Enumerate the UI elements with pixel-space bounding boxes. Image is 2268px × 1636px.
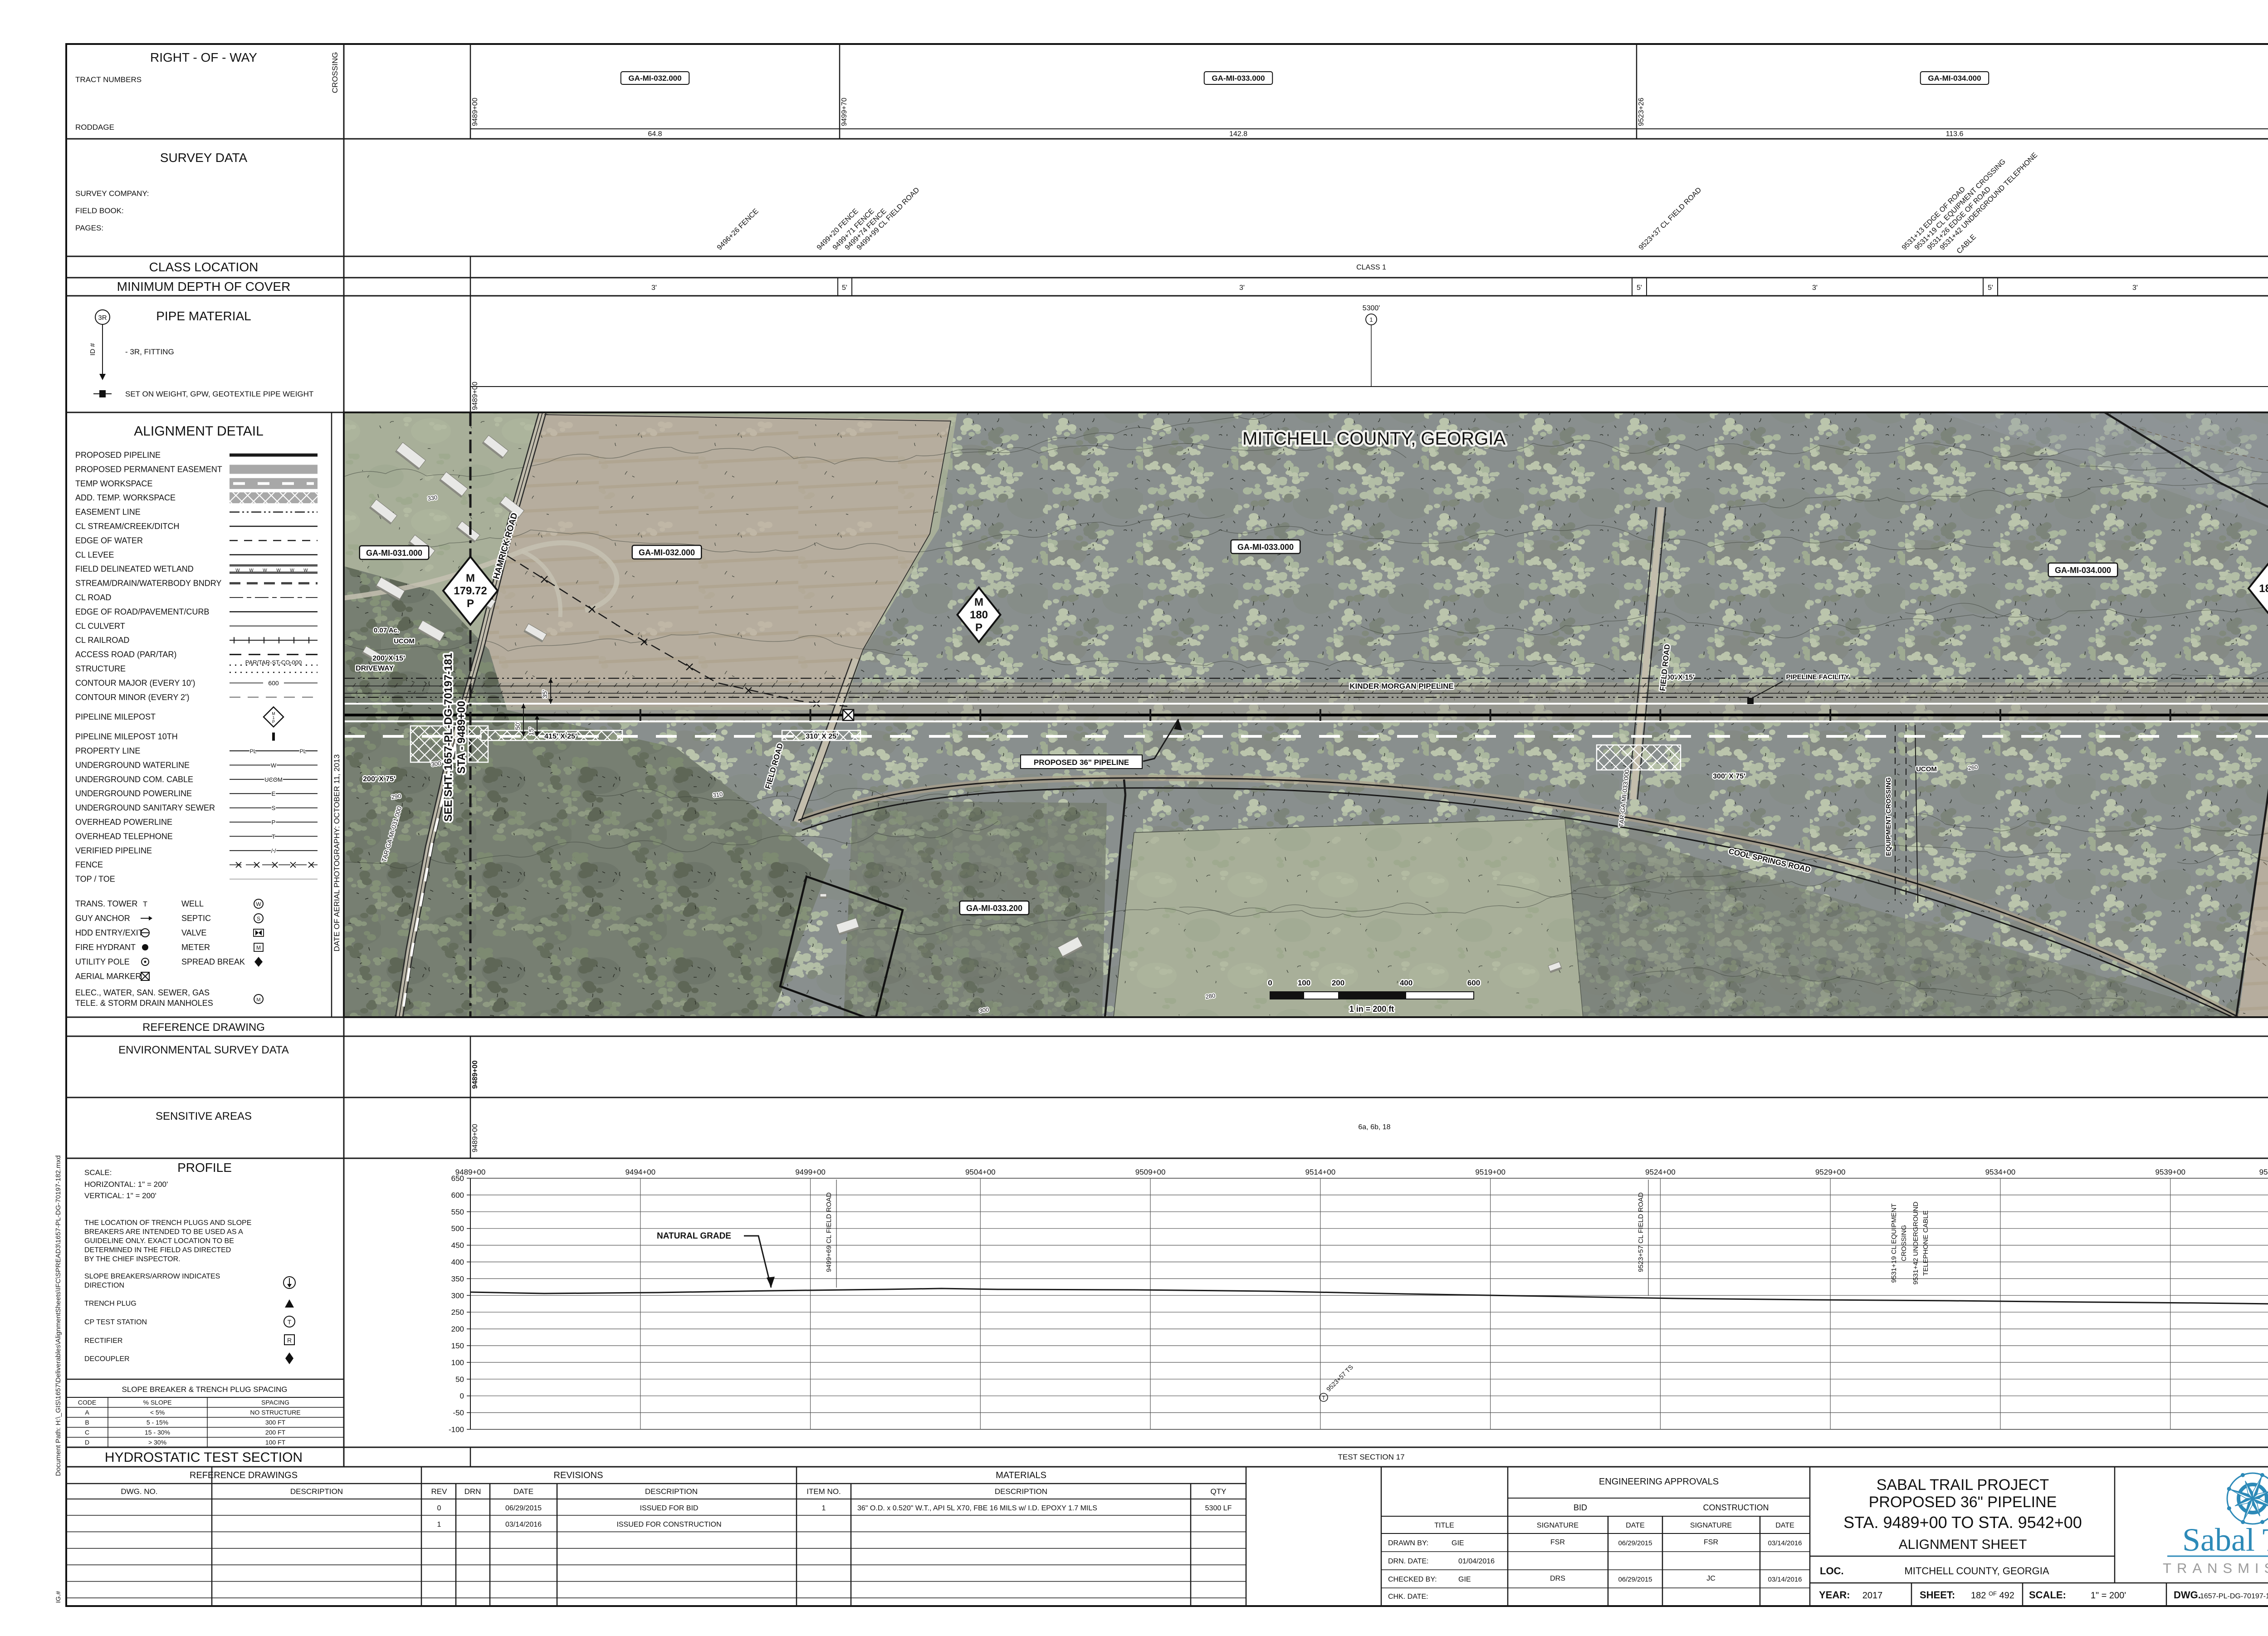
svg-text:DWG. NO.: DWG. NO.	[121, 1487, 157, 1496]
svg-text:CP TEST STATION: CP TEST STATION	[84, 1318, 147, 1326]
svg-text:FSR: FSR	[1704, 1538, 1718, 1546]
svg-text:UNDERGROUND POWERLINE: UNDERGROUND POWERLINE	[75, 789, 192, 798]
svg-text:-100: -100	[449, 1425, 464, 1434]
svg-text:ACCESS ROAD (PAR/TAR): ACCESS ROAD (PAR/TAR)	[75, 650, 176, 659]
svg-text:P: P	[272, 819, 276, 826]
svg-text:9524+00: 9524+00	[1645, 1168, 1676, 1176]
svg-text:03/14/2016: 03/14/2016	[1768, 1539, 1802, 1547]
svg-text:YEAR:: YEAR:	[1819, 1589, 1850, 1601]
svg-text:UNDERGROUND COM. CABLE: UNDERGROUND COM. CABLE	[75, 775, 193, 784]
svg-text:GUIDELINE ONLY. EXACT LOCATIO: GUIDELINE ONLY. EXACT LOCATION TO BE	[84, 1237, 234, 1245]
svg-text:REFERENCE DRAWINGS: REFERENCE DRAWINGS	[190, 1470, 298, 1480]
svg-text:SEE SHT. 1657-PL-DG-70197-181: SEE SHT. 1657-PL-DG-70197-181	[442, 653, 455, 822]
svg-text:W: W	[235, 568, 240, 573]
svg-text:200 FT: 200 FT	[265, 1429, 286, 1436]
svg-text:RIGHT - OF - WAY: RIGHT - OF - WAY	[150, 50, 257, 64]
svg-text:REVISIONS: REVISIONS	[554, 1470, 603, 1480]
svg-text:1: 1	[822, 1504, 826, 1512]
svg-text:W: W	[303, 568, 308, 573]
svg-text:0: 0	[1268, 979, 1272, 987]
svg-text:DRIVEWAY: DRIVEWAY	[356, 665, 394, 672]
svg-text:UCOM: UCOM	[1916, 765, 1937, 773]
svg-text:GA-MI-034.000: GA-MI-034.000	[1928, 74, 1981, 83]
svg-text:36" O.D. x 0.520" W.T., API 5L: 36" O.D. x 0.520" W.T., API 5L X70, FBE …	[857, 1504, 1097, 1512]
svg-text:142.8: 142.8	[1229, 130, 1247, 138]
svg-text:5': 5'	[1988, 284, 1993, 292]
svg-text:P: P	[272, 720, 275, 724]
svg-text:SPREAD BREAK: SPREAD BREAK	[181, 957, 245, 966]
svg-text:GA-MI-033.000: GA-MI-033.000	[1237, 543, 1294, 552]
svg-text:DATE: DATE	[1775, 1522, 1794, 1529]
svg-text:600: 600	[1467, 979, 1480, 987]
svg-text:3': 3'	[1239, 284, 1245, 292]
svg-text:CLASS 1: CLASS 1	[1356, 264, 1386, 271]
svg-text:350: 350	[451, 1274, 464, 1283]
svg-text:2017: 2017	[1862, 1591, 1883, 1601]
svg-text:9531+19 CL EQUIPMENT: 9531+19 CL EQUIPMENT	[1890, 1204, 1898, 1283]
svg-text:9523+26: 9523+26	[1637, 98, 1645, 126]
svg-text:9494+00: 9494+00	[625, 1168, 655, 1176]
svg-text:290: 290	[391, 793, 402, 801]
svg-text:CL CULVERT: CL CULVERT	[75, 622, 125, 631]
svg-text:GA-MI-033.000: GA-MI-033.000	[1212, 74, 1265, 83]
svg-text:CONTOUR MAJOR (EVERY 10'): CONTOUR MAJOR (EVERY 10')	[75, 678, 196, 687]
svg-text:200: 200	[1332, 979, 1344, 987]
svg-text:A: A	[85, 1409, 89, 1416]
svg-text:RODDAGE: RODDAGE	[75, 123, 114, 132]
svg-text:CL LEVEE: CL LEVEE	[75, 550, 114, 559]
svg-text:300: 300	[979, 1006, 990, 1014]
svg-text:NATURAL GRADE: NATURAL GRADE	[657, 1231, 731, 1241]
svg-text:P: P	[467, 598, 474, 610]
svg-text:1657-PL-DG-70197-182: 1657-PL-DG-70197-182	[2200, 1592, 2268, 1600]
svg-text:DESCRIPTION: DESCRIPTION	[290, 1487, 343, 1496]
svg-text:9489+00: 9489+00	[455, 1168, 486, 1176]
svg-text:FIRE HYDRANT: FIRE HYDRANT	[75, 943, 136, 952]
svg-text:EDGE OF WATER: EDGE OF WATER	[75, 536, 143, 545]
svg-text:W: W	[249, 568, 254, 573]
svg-text:T: T	[288, 1318, 292, 1326]
svg-text:600: 600	[451, 1191, 464, 1200]
svg-text:0.07 Ac.: 0.07 Ac.	[374, 627, 399, 634]
svg-text:W: W	[271, 762, 277, 769]
svg-text:ALIGNMENT SHEET: ALIGNMENT SHEET	[1899, 1537, 2027, 1552]
svg-text:SLOPE BREAKER & TRENCH PLUG SP: SLOPE BREAKER & TRENCH PLUG SPACING	[122, 1385, 288, 1394]
svg-text:SET ON WEIGHT, GPW, GEOTEXTILE: SET ON WEIGHT, GPW, GEOTEXTILE PIPE WEIG…	[125, 390, 313, 398]
svg-text:KINDER MORGAN PIPELINE: KINDER MORGAN PIPELINE	[1349, 682, 1454, 691]
svg-text:W: W	[276, 568, 281, 573]
svg-text:QTY: QTY	[1211, 1487, 1227, 1496]
svg-text:EDGE OF ROAD/PAVEMENT/CURB: EDGE OF ROAD/PAVEMENT/CURB	[75, 607, 209, 616]
svg-text:01/04/2016: 01/04/2016	[1458, 1558, 1495, 1565]
svg-text:CLASS LOCATION: CLASS LOCATION	[149, 260, 259, 274]
svg-text:S: S	[257, 916, 260, 922]
svg-text:DATE: DATE	[513, 1487, 533, 1496]
svg-text:DATE OF AERIAL PHOTOGRAPHY: OC: DATE OF AERIAL PHOTOGRAPHY: OCTOBER 11, …	[332, 754, 341, 952]
svg-text:9504+00: 9504+00	[965, 1168, 996, 1176]
svg-text:P: P	[975, 622, 982, 634]
svg-text:SABAL TRAIL PROJECT: SABAL TRAIL PROJECT	[1877, 1476, 2049, 1494]
svg-text:180: 180	[970, 609, 988, 621]
svg-text:DRAWN BY:: DRAWN BY:	[1388, 1539, 1428, 1547]
svg-text:PIPE MATERIAL: PIPE MATERIAL	[156, 309, 251, 323]
svg-text:100: 100	[451, 1358, 464, 1367]
svg-text:310: 310	[713, 791, 723, 799]
svg-text:MINIMUM DEPTH OF COVER: MINIMUM DEPTH OF COVER	[117, 279, 291, 294]
svg-text:GIE: GIE	[1458, 1576, 1471, 1583]
svg-text:UNDERGROUND WATERLINE: UNDERGROUND WATERLINE	[75, 760, 190, 769]
svg-text:6a, 6b, 18: 6a, 6b, 18	[1358, 1123, 1390, 1131]
svg-text:03/14/2016: 03/14/2016	[1768, 1576, 1802, 1583]
svg-text:TRACT NUMBERS: TRACT NUMBERS	[75, 75, 142, 84]
svg-text:113.6: 113.6	[1946, 130, 1964, 138]
svg-text:9509+00: 9509+00	[1135, 1168, 1166, 1176]
svg-text:TELEPHONE CABLE: TELEPHONE CABLE	[1922, 1210, 1930, 1276]
svg-text:T: T	[1322, 1396, 1325, 1401]
svg-text:9539+00: 9539+00	[2155, 1168, 2185, 1176]
svg-text:NO STRUCTURE: NO STRUCTURE	[250, 1409, 300, 1416]
svg-text:MATERIALS: MATERIALS	[996, 1470, 1046, 1480]
svg-text:PIPELINE MILEPOST 10TH: PIPELINE MILEPOST 10TH	[75, 732, 178, 741]
svg-text:CL STREAM/CREEK/DITCH: CL STREAM/CREEK/DITCH	[75, 522, 179, 531]
svg-text:5': 5'	[1637, 284, 1642, 292]
svg-text:06/29/2015: 06/29/2015	[505, 1504, 542, 1512]
svg-text:FIELD BOOK:: FIELD BOOK:	[75, 206, 124, 215]
svg-text:GIE: GIE	[1452, 1539, 1464, 1547]
svg-text:Sabal Trail: Sabal Trail	[2182, 1522, 2268, 1558]
svg-text:SIGNATURE: SIGNATURE	[1537, 1522, 1579, 1529]
svg-text:IG.#: IG.#	[54, 1591, 62, 1603]
svg-text:CROSSING: CROSSING	[1900, 1225, 1908, 1261]
svg-text:STRUCTURE: STRUCTURE	[75, 664, 126, 673]
svg-text:CONSTRUCTION: CONSTRUCTION	[1703, 1503, 1769, 1512]
svg-text:C: C	[85, 1429, 89, 1436]
svg-text:400: 400	[1400, 979, 1413, 987]
svg-text:FENCE: FENCE	[75, 860, 103, 869]
svg-text:50': 50'	[514, 722, 521, 730]
svg-text:CL RAILROAD: CL RAILROAD	[75, 636, 129, 645]
svg-text:DRN. DATE:: DRN. DATE:	[1388, 1558, 1428, 1565]
svg-text:9514+00: 9514+00	[1305, 1168, 1336, 1176]
svg-text:PROPOSED PERMANENT EASEMENT: PROPOSED PERMANENT EASEMENT	[75, 465, 222, 474]
svg-text:DESCRIPTION: DESCRIPTION	[645, 1487, 698, 1496]
svg-text:DWG.: DWG.	[2174, 1589, 2201, 1601]
svg-text:PL: PL	[300, 748, 307, 754]
svg-text:300 FT: 300 FT	[265, 1419, 286, 1426]
svg-text:260: 260	[1968, 764, 1979, 772]
svg-text:50: 50	[455, 1375, 464, 1384]
svg-text:64.8: 64.8	[648, 130, 662, 138]
svg-text:M: M	[256, 945, 261, 951]
svg-text:STREAM/DRAIN/WATERBODY BNDRY: STREAM/DRAIN/WATERBODY BNDRY	[75, 579, 221, 588]
svg-text:OVERHEAD POWERLINE: OVERHEAD POWERLINE	[75, 818, 172, 827]
svg-text:PL: PL	[250, 748, 257, 754]
svg-text:W: W	[263, 568, 267, 573]
svg-text:SCALE:: SCALE:	[84, 1168, 112, 1177]
svg-text:179.72: 179.72	[454, 585, 487, 597]
svg-text:AERIAL MARKER: AERIAL MARKER	[75, 972, 141, 981]
svg-text:UNDERGROUND SANITARY SEWER: UNDERGROUND SANITARY SEWER	[75, 803, 215, 813]
svg-text:3': 3'	[1812, 284, 1818, 292]
svg-text:M: M	[256, 997, 260, 1003]
svg-text:MITCHELL COUNTY, GEORGIA: MITCHELL COUNTY, GEORGIA	[1904, 1565, 2049, 1577]
svg-text:ID #: ID #	[89, 343, 97, 356]
svg-text:PROFILE: PROFILE	[177, 1161, 232, 1175]
svg-text:STA - 9489+00: STA - 9489+00	[455, 701, 468, 774]
svg-text:UCOM: UCOM	[394, 637, 415, 645]
svg-text:ISSUED FOR CONSTRUCTION: ISSUED FOR CONSTRUCTION	[616, 1521, 721, 1528]
svg-text:ALIGNMENT DETAIL: ALIGNMENT DETAIL	[134, 424, 264, 439]
svg-text:SHEET:: SHEET:	[1920, 1589, 1955, 1601]
svg-text:Document Path: H:\_GIS\1657\De: Document Path: H:\_GIS\1657\Deliverables…	[54, 1155, 62, 1476]
svg-text:< 5%: < 5%	[150, 1409, 165, 1416]
svg-text:TRANS. TOWER: TRANS. TOWER	[75, 899, 137, 908]
svg-text:CHK. DATE:: CHK. DATE:	[1388, 1593, 1428, 1601]
svg-text:330: 330	[427, 494, 438, 502]
svg-text:5300': 5300'	[1363, 304, 1380, 312]
svg-text:UCOM: UCOM	[264, 776, 283, 783]
svg-text:9489+00: 9489+00	[471, 1124, 479, 1152]
svg-text:DETERMINED IN THE FIELD AS DIR: DETERMINED IN THE FIELD AS DIRECTED	[84, 1246, 231, 1254]
svg-text:200: 200	[451, 1325, 464, 1333]
svg-text:JC: JC	[1706, 1575, 1716, 1582]
svg-text:GA-MI-032.000: GA-MI-032.000	[628, 74, 681, 83]
svg-text:06/29/2015: 06/29/2015	[1618, 1539, 1652, 1547]
svg-text:MITCHELL COUNTY, GEORGIA: MITCHELL COUNTY, GEORGIA	[1242, 429, 1505, 449]
svg-text:LOC.: LOC.	[1820, 1565, 1844, 1577]
svg-text:1" = 200': 1" = 200'	[2091, 1591, 2126, 1601]
svg-text:/ /: / /	[271, 847, 276, 854]
svg-text:BID: BID	[1574, 1503, 1587, 1512]
svg-text:EASEMENT LINE: EASEMENT LINE	[75, 508, 141, 517]
svg-text:200' X 75': 200' X 75'	[363, 775, 396, 783]
svg-text:VERTICAL: 1" = 200': VERTICAL: 1" = 200'	[84, 1191, 156, 1200]
svg-text:GUY ANCHOR: GUY ANCHOR	[75, 914, 130, 923]
svg-text:PAGES:: PAGES:	[75, 224, 103, 232]
svg-text:9489+00: 9489+00	[471, 98, 479, 126]
svg-text:ISSUED FOR BID: ISSUED FOR BID	[640, 1504, 699, 1512]
svg-text:SEPTIC: SEPTIC	[181, 914, 211, 923]
svg-text:9489+00: 9489+00	[471, 1060, 479, 1089]
svg-text:06/29/2015: 06/29/2015	[1618, 1576, 1652, 1583]
svg-text:GA-MI-031.000: GA-MI-031.000	[366, 549, 422, 558]
svg-text:300' X 75': 300' X 75'	[1713, 773, 1745, 780]
svg-text:5 - 15%: 5 - 15%	[147, 1419, 168, 1426]
svg-text:250: 250	[451, 1308, 464, 1317]
svg-text:5300 LF: 5300 LF	[1205, 1504, 1232, 1512]
svg-text:ITEM NO.: ITEM NO.	[807, 1487, 841, 1496]
svg-text:CODE: CODE	[78, 1399, 96, 1406]
svg-text:3': 3'	[2132, 284, 2138, 292]
svg-text:SLOPE BREAKERS/ARROW INDICATES: SLOPE BREAKERS/ARROW INDICATES	[84, 1273, 220, 1280]
svg-text:THE LOCATION OF TRENCH PLUGS A: THE LOCATION OF TRENCH PLUGS AND SLOPE	[84, 1219, 251, 1227]
svg-text:S: S	[272, 805, 276, 812]
svg-text:EQUIPMENT CROSSING: EQUIPMENT CROSSING	[1885, 777, 1892, 856]
svg-text:ELEC., WATER, SAN. SEWER, GAS: ELEC., WATER, SAN. SEWER, GAS	[75, 988, 210, 997]
svg-text:M: M	[974, 596, 983, 608]
svg-text:REFERENCE DRAWING: REFERENCE DRAWING	[142, 1021, 265, 1034]
svg-text:DATE: DATE	[1626, 1522, 1644, 1529]
svg-text:9519+00: 9519+00	[1475, 1168, 1505, 1176]
svg-text:9499+69 CL FIELD ROAD: 9499+69 CL FIELD ROAD	[825, 1192, 833, 1272]
svg-text:E: E	[272, 790, 276, 797]
svg-text:SURVEY DATA: SURVEY DATA	[160, 151, 248, 165]
svg-text:TITLE: TITLE	[1434, 1522, 1454, 1529]
svg-text:BY THE CHIEF INSPECTOR.: BY THE CHIEF INSPECTOR.	[84, 1255, 181, 1263]
svg-text:450: 450	[451, 1241, 464, 1250]
svg-text:5': 5'	[842, 284, 847, 292]
svg-text:SENSITIVE AREAS: SENSITIVE AREAS	[156, 1110, 252, 1122]
svg-text:180.72: 180.72	[2259, 583, 2268, 595]
svg-text:1: 1	[1369, 316, 1373, 323]
svg-text:RECTIFIER: RECTIFIER	[84, 1337, 122, 1345]
svg-text:0: 0	[437, 1504, 441, 1512]
svg-text:9529+00: 9529+00	[1815, 1168, 1846, 1176]
svg-text:-50: -50	[453, 1409, 464, 1417]
svg-text:TRENCH PLUG: TRENCH PLUG	[84, 1300, 137, 1308]
svg-text:> 30%: > 30%	[148, 1439, 166, 1446]
svg-text:UTILITY POLE: UTILITY POLE	[75, 957, 130, 966]
svg-text:ADD. TEMP. WORKSPACE: ADD. TEMP. WORKSPACE	[75, 493, 176, 502]
svg-text:BREAKERS ARE INTENDED TO BE US: BREAKERS ARE INTENDED TO BE USED AS A	[84, 1228, 243, 1236]
svg-text:SURVEY COMPANY:: SURVEY COMPANY:	[75, 189, 149, 198]
svg-text:SIGNATURE: SIGNATURE	[1690, 1522, 1732, 1529]
svg-text:0: 0	[460, 1392, 464, 1401]
svg-text:300: 300	[431, 760, 442, 768]
svg-text:PROPOSED PIPELINE: PROPOSED PIPELINE	[75, 451, 161, 460]
svg-text:TRANSMISSION: TRANSMISSION	[2163, 1560, 2268, 1576]
svg-text:150: 150	[451, 1342, 464, 1350]
svg-text:HDD ENTRY/EXIT: HDD ENTRY/EXIT	[75, 928, 143, 937]
svg-text:METER: METER	[181, 943, 210, 952]
svg-text:DRS: DRS	[1550, 1575, 1565, 1582]
svg-text:- 3R, FITTING: - 3R, FITTING	[125, 348, 174, 356]
svg-text:CL ROAD: CL ROAD	[75, 593, 111, 602]
svg-text:9523+57 CL FIELD ROAD: 9523+57 CL FIELD ROAD	[1637, 1192, 1645, 1272]
svg-text:280: 280	[1205, 992, 1216, 1000]
svg-text:15': 15'	[528, 727, 535, 735]
svg-text:TEST SECTION 17: TEST SECTION 17	[1338, 1453, 1404, 1461]
svg-text:HORIZONTAL: 1" = 200': HORIZONTAL: 1" = 200'	[84, 1180, 168, 1189]
svg-text:DIRECTION: DIRECTION	[84, 1282, 124, 1289]
svg-text:ENVIRONMENTAL SURVEY DATA: ENVIRONMENTAL SURVEY DATA	[118, 1044, 289, 1056]
svg-text:3': 3'	[651, 284, 657, 292]
svg-text:TOP / TOE: TOP / TOE	[75, 875, 115, 884]
svg-text:% SLOPE: % SLOPE	[143, 1399, 171, 1406]
svg-text:FIELD DELINEATED WETLAND: FIELD DELINEATED WETLAND	[75, 564, 194, 573]
svg-text:TEMP WORKSPACE: TEMP WORKSPACE	[75, 479, 152, 488]
svg-text:FSR: FSR	[1550, 1538, 1565, 1546]
svg-text:VALVE: VALVE	[181, 928, 206, 937]
svg-text:9499+70: 9499+70	[841, 98, 848, 126]
svg-text:35': 35'	[541, 690, 548, 698]
svg-text:310' X 25': 310' X 25'	[806, 733, 838, 740]
svg-text:M: M	[466, 572, 475, 584]
svg-text:REV: REV	[431, 1487, 448, 1496]
svg-text:TELE. & STORM DRAIN MANHOLES: TELE. & STORM DRAIN MANHOLES	[75, 999, 213, 1008]
svg-text:415' X 25': 415' X 25'	[544, 733, 577, 740]
svg-text:DRN: DRN	[464, 1487, 481, 1496]
svg-text:W: W	[290, 568, 294, 573]
svg-text:PROPOSED 36" PIPELINE: PROPOSED 36" PIPELINE	[1034, 758, 1129, 767]
svg-text:9531+42 UNDERGROUND: 9531+42 UNDERGROUND	[1912, 1201, 1920, 1284]
svg-text:T: T	[272, 833, 275, 840]
svg-text:9542+00: 9542+00	[2259, 1168, 2268, 1176]
svg-text:100: 100	[1298, 979, 1310, 987]
svg-text:100 FT: 100 FT	[265, 1439, 286, 1446]
svg-text:GA-MI-034.000: GA-MI-034.000	[2055, 566, 2111, 575]
svg-text:300: 300	[451, 1291, 464, 1300]
svg-text:OVERHEAD TELEPHONE: OVERHEAD TELEPHONE	[75, 832, 173, 841]
svg-text:PIPELINE MILEPOST: PIPELINE MILEPOST	[75, 712, 156, 721]
svg-text:SPACING: SPACING	[261, 1399, 289, 1406]
svg-text:D: D	[85, 1439, 89, 1446]
svg-text:CHECKED BY:: CHECKED BY:	[1388, 1576, 1437, 1583]
svg-text:PROPERTY LINE: PROPERTY LINE	[75, 746, 140, 755]
svg-text:PIPELINE FACILITY: PIPELINE FACILITY	[1786, 673, 1849, 681]
svg-text:ENGINEERING APPROVALS: ENGINEERING APPROVALS	[1599, 1477, 1719, 1487]
svg-text:W: W	[256, 901, 261, 907]
svg-text:SCALE:: SCALE:	[2029, 1589, 2066, 1601]
svg-text:GA-MI-033.200: GA-MI-033.200	[966, 904, 1022, 913]
svg-text:1 in = 200 ft: 1 in = 200 ft	[1349, 1004, 1394, 1014]
svg-text:CROSSING: CROSSING	[331, 52, 339, 93]
svg-text:600: 600	[268, 679, 279, 686]
svg-text:15 - 30%: 15 - 30%	[145, 1429, 170, 1436]
svg-text:DESCRIPTION: DESCRIPTION	[995, 1487, 1047, 1496]
svg-text:400: 400	[451, 1258, 464, 1267]
svg-text:DECOUPLER: DECOUPLER	[84, 1355, 130, 1363]
svg-text:WELL: WELL	[181, 899, 204, 908]
svg-text:B: B	[85, 1419, 89, 1426]
svg-text:9499+00: 9499+00	[795, 1168, 826, 1176]
svg-text:1: 1	[437, 1521, 441, 1528]
svg-text:9489+00: 9489+00	[471, 382, 479, 410]
svg-text:STA. 9489+00 TO STA. 9542+00: STA. 9489+00 TO STA. 9542+00	[1843, 1513, 2082, 1532]
svg-text:03/14/2016: 03/14/2016	[505, 1521, 542, 1528]
svg-text:9534+00: 9534+00	[1985, 1168, 2016, 1176]
svg-text:200' X 15': 200' X 15'	[372, 655, 405, 662]
svg-text:500: 500	[451, 1225, 464, 1233]
svg-text:3R: 3R	[98, 314, 107, 322]
svg-text:550: 550	[451, 1208, 464, 1216]
svg-text:VERIFIED PIPELINE: VERIFIED PIPELINE	[75, 846, 152, 855]
svg-text:HYDROSTATIC TEST SECTION: HYDROSTATIC TEST SECTION	[105, 1450, 303, 1465]
svg-text:GA-MI-032.000: GA-MI-032.000	[639, 548, 695, 557]
svg-text:PROPOSED 36" PIPELINE: PROPOSED 36" PIPELINE	[1869, 1494, 2057, 1511]
svg-text:CONTOUR MINOR (EVERY 2'): CONTOUR MINOR (EVERY 2')	[75, 693, 189, 702]
svg-text:R: R	[287, 1337, 292, 1344]
svg-text:T: T	[143, 901, 147, 908]
